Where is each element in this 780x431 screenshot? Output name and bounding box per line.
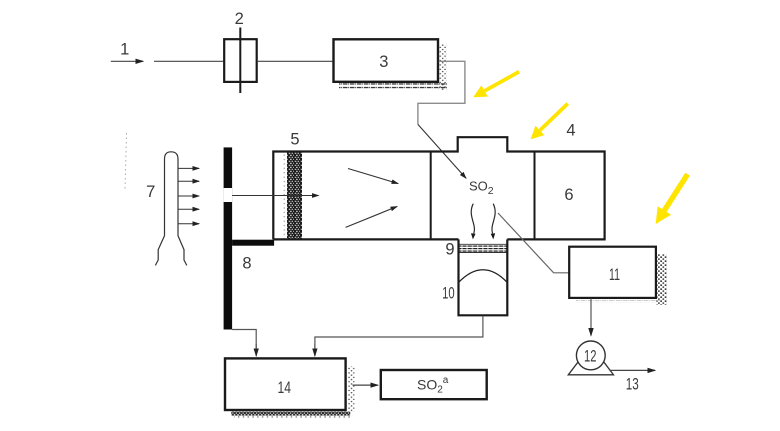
svg-text:12: 12 xyxy=(584,347,597,365)
svg-text:13: 13 xyxy=(626,375,639,393)
svg-text:10: 10 xyxy=(442,285,455,303)
svg-text:6: 6 xyxy=(564,186,573,204)
svg-text:4: 4 xyxy=(566,122,575,140)
svg-text:5: 5 xyxy=(290,131,299,149)
svg-text:SO2: SO2 xyxy=(469,179,494,198)
svg-text:2: 2 xyxy=(235,10,244,28)
svg-text:14: 14 xyxy=(277,379,291,397)
svg-text:9: 9 xyxy=(445,241,454,259)
svg-text:7: 7 xyxy=(146,183,155,201)
svg-text:1: 1 xyxy=(120,41,129,59)
svg-text:11: 11 xyxy=(609,266,620,284)
svg-text:3: 3 xyxy=(379,53,388,71)
svg-text:8: 8 xyxy=(242,255,251,273)
